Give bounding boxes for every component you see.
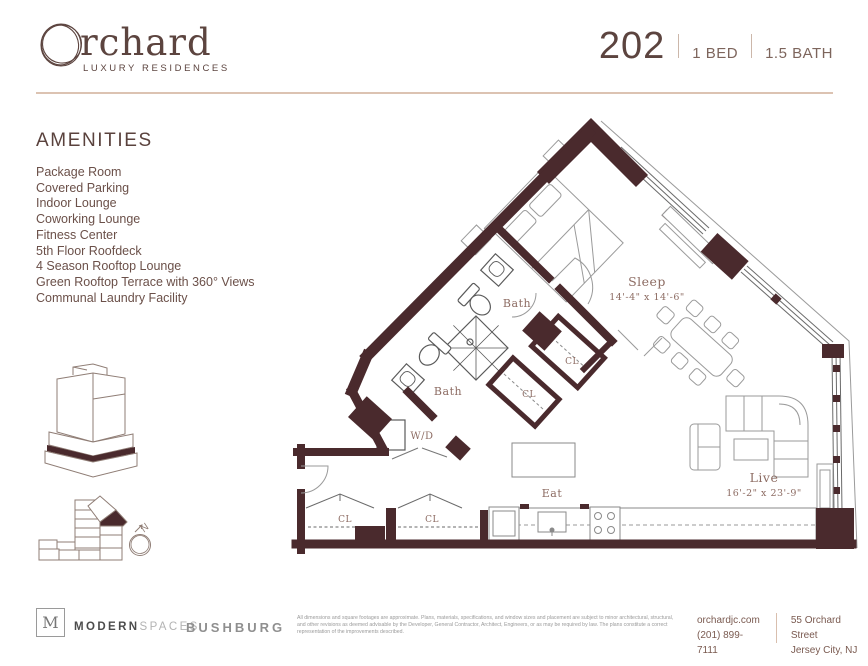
closet-label: CL	[522, 390, 536, 400]
armchair	[690, 424, 720, 470]
amenity-item: Fitness Center	[36, 228, 286, 244]
unit-divider	[678, 34, 679, 58]
website-link[interactable]: orchardjc.com	[697, 613, 762, 628]
closet-label: CL	[565, 357, 579, 367]
amenity-item: Green Rooftop Terrace with 360° Views	[36, 275, 286, 291]
compass-icon: N	[130, 521, 153, 555]
floorplan-flyer-page: rchard LUXURY RESIDENCES 202 1 BED 1.5 B…	[0, 0, 868, 666]
live-dims: 16'-2" x 23'-9"	[726, 488, 802, 499]
amenity-item: Communal Laundry Facility	[36, 291, 286, 307]
compass-north-label: N	[139, 521, 152, 534]
amenities-section: AMENITIES Package Room Covered Parking I…	[36, 130, 286, 306]
sleep-dims: 14'-4" x 14'-6"	[609, 292, 685, 303]
amenity-item: Coworking Lounge	[36, 212, 286, 228]
closet-label: CL	[425, 515, 439, 525]
closet-label: CL	[338, 515, 352, 525]
coffee-table	[734, 439, 768, 460]
amenity-item: 4 Season Rooftop Lounge	[36, 259, 286, 275]
dining-set	[640, 287, 762, 405]
orchard-logo-circle-icon	[36, 18, 86, 72]
orchard-logo: rchard LUXURY RESIDENCES	[36, 18, 230, 74]
legal-disclaimer: All dimensions and square footages are a…	[297, 615, 675, 636]
contact-block: orchardjc.com (201) 899-7111 55 Orchard …	[697, 613, 868, 658]
stove	[590, 507, 620, 540]
wall-blocks	[348, 233, 854, 549]
unit-number: 202	[599, 26, 665, 66]
tv-unit	[817, 464, 833, 514]
amenity-item: Package Room	[36, 165, 286, 181]
amenity-item: Covered Parking	[36, 181, 286, 197]
brand-text-block: rchard LUXURY RESIDENCES	[80, 18, 230, 74]
sleep-label: Sleep	[628, 274, 666, 289]
unit-info: 202 1 BED 1.5 BATH	[599, 26, 833, 66]
brand-name: rchard	[80, 26, 230, 60]
unit-divider	[751, 34, 752, 58]
amenities-list: Package Room Covered Parking Indoor Loun…	[36, 165, 286, 306]
brand-tagline: LUXURY RESIDENCES	[83, 63, 230, 74]
address-street: 55 Orchard Street	[791, 613, 868, 643]
modern-spaces-wordmark: MODERNSPACES	[74, 621, 200, 633]
contact-address: 55 Orchard Street Jersey City, NJ	[791, 613, 868, 658]
amenity-item: 5th Floor Roofdeck	[36, 244, 286, 260]
window-bench	[654, 206, 721, 272]
bath-upper-label: Bath	[503, 297, 531, 310]
amenity-item: Indoor Lounge	[36, 196, 286, 212]
contact-divider	[776, 613, 777, 643]
bushburg-wordmark: BUSHBURG	[186, 620, 285, 635]
kitchen	[489, 504, 816, 541]
floor-plan: Sleep 14'-4" x 14'-6" Bath Bath CL CL W/…	[280, 105, 868, 570]
header-divider	[36, 92, 833, 94]
phone-number: (201) 899-7111	[697, 628, 762, 658]
wd-label: W/D	[410, 431, 433, 442]
sink-upper	[481, 254, 514, 286]
toilet-upper	[457, 283, 496, 322]
unit-bath-count: 1.5 BATH	[765, 45, 833, 62]
amenities-title: AMENITIES	[36, 130, 286, 152]
kitchen-island	[512, 443, 575, 477]
address-city: Jersey City, NJ	[791, 643, 868, 658]
unit-bed-count: 1 BED	[692, 45, 738, 62]
floorplate-keyplan: N	[35, 492, 159, 568]
sectional-sofa	[726, 396, 808, 477]
building-elevation-keyplan	[35, 360, 147, 482]
live-label: Live	[750, 470, 779, 485]
contact-web-phone: orchardjc.com (201) 899-7111	[697, 613, 762, 658]
modern-spaces-initial: M	[42, 613, 58, 632]
eat-label: Eat	[542, 487, 563, 500]
modern-spaces-logo: M	[36, 608, 65, 637]
toilet-lower	[413, 332, 452, 371]
bath-lower-label: Bath	[434, 385, 462, 398]
